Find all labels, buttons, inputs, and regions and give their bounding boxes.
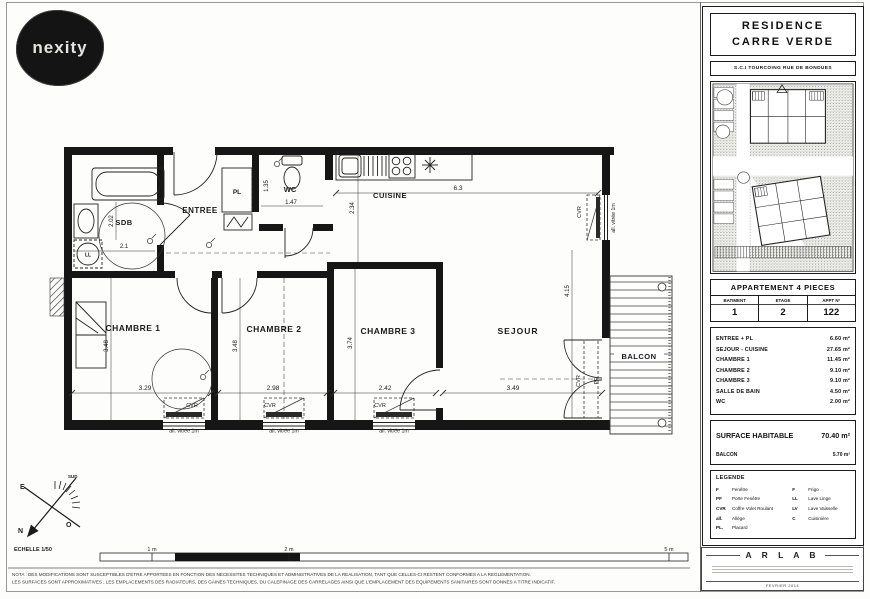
room-label-sdb: SDB bbox=[115, 218, 132, 227]
label-cvr-ch3: CVR bbox=[374, 403, 386, 409]
legend-item: all.Allège bbox=[716, 514, 788, 524]
scale-2m: 2 m bbox=[284, 547, 294, 553]
dim-ch2-w: 2.98 bbox=[267, 385, 280, 392]
area-label: CHAMBRE 3 bbox=[716, 376, 750, 387]
label-cvr-pf: CVR bbox=[576, 375, 582, 387]
scale-echelle: ECHELLE 1/50 bbox=[14, 547, 52, 553]
area-value: 6.60 m² bbox=[830, 334, 850, 345]
legend-abbr: LL bbox=[792, 494, 808, 504]
room-areas-box: ENTREE + PL6.60 m² SEJOUR - CUISINE27.65… bbox=[710, 327, 856, 415]
dim-sdb-h: 2.02 bbox=[109, 215, 115, 227]
room-label-pl: PL bbox=[233, 189, 241, 196]
site-plan-drawing bbox=[711, 82, 855, 273]
legend-abbr: CVR bbox=[716, 504, 732, 514]
architect-firm-name: A R L A B bbox=[706, 550, 859, 560]
batiment-value: 1 bbox=[711, 305, 758, 321]
area-row: CHAMBRE 29.10 m² bbox=[716, 366, 850, 377]
area-row: ENTREE + PL6.60 m² bbox=[716, 334, 850, 345]
dim-sejour-h: 4.15 bbox=[565, 285, 571, 297]
balcon-area-label: BALCON bbox=[716, 452, 737, 458]
residence-name-line2: CARRE VERDE bbox=[713, 35, 853, 51]
area-label: CHAMBRE 1 bbox=[716, 355, 750, 366]
label-lave-linge: LL bbox=[85, 253, 91, 259]
legend-abbr: PL. bbox=[716, 523, 732, 533]
compass-n: N bbox=[18, 528, 23, 535]
area-label: SEJOUR - CUISINE bbox=[716, 345, 768, 356]
dim-cuisine-h: 2.34 bbox=[350, 202, 356, 214]
surface-habitable-value: 70.40 m² bbox=[821, 431, 850, 440]
residence-title-box: RESIDENCE CARRE VERDE bbox=[710, 13, 856, 56]
room-label-cuisine: CUISINE bbox=[373, 191, 407, 200]
dim-ch3-w: 2.42 bbox=[379, 385, 392, 392]
legend-item: CVRCoffre Volet Roulant bbox=[716, 504, 788, 514]
label-allege-ch2: all. vitrée 1m bbox=[269, 429, 298, 435]
building-south bbox=[752, 176, 830, 245]
etage-cell: ETAGE 2 bbox=[759, 296, 807, 321]
dim-wc-w: 1.47 bbox=[285, 200, 297, 206]
compass-o: O bbox=[66, 522, 72, 529]
kitchen-fixtures bbox=[336, 152, 472, 180]
room-label-sejour: SEJOUR bbox=[498, 326, 539, 336]
legend-abbr: all. bbox=[716, 514, 732, 524]
dim-wc-h: 1.35 bbox=[264, 180, 270, 192]
area-value: 9.10 m² bbox=[830, 366, 850, 377]
architect-block: A R L A B FEVRIER 2014 bbox=[701, 547, 864, 591]
label-cvr-ch1: CVR bbox=[186, 403, 198, 409]
legend-item: LVLave Vaisselle bbox=[792, 504, 850, 514]
area-value: 2.00 m² bbox=[830, 397, 850, 408]
compass-sud: SUD bbox=[68, 474, 78, 479]
legend-item: PFPorte Fenêtre bbox=[716, 494, 788, 504]
legend-label: Frigo bbox=[808, 485, 818, 495]
batiment-cell: BATIMENT 1 bbox=[711, 296, 759, 321]
room-label-chambre3: CHAMBRE 3 bbox=[360, 326, 415, 336]
residence-name-line1: RESIDENCE bbox=[713, 19, 853, 35]
dim-sdb-w: 2.1 bbox=[120, 244, 129, 250]
room-label-chambre2: CHAMBRE 2 bbox=[246, 324, 301, 334]
nota-line-2: LES SURFACES SONT APPROXIMATIVES ; LES E… bbox=[12, 580, 555, 585]
label-allege-cuisine: all. vitrée 1m bbox=[611, 203, 617, 232]
legend-label: Placard bbox=[732, 523, 748, 533]
legend-label: Cuisinière bbox=[808, 514, 828, 524]
dim-ch2-h: 3.48 bbox=[233, 340, 239, 352]
legend-abbr: LV bbox=[792, 504, 808, 514]
dashed-axes bbox=[166, 253, 598, 420]
building-north bbox=[750, 90, 825, 144]
legend-box: LEGENDE FFenêtre PFPorte Fenêtre CVRCoff… bbox=[710, 470, 856, 539]
surface-habitable-label: SURFACE HABITABLE bbox=[716, 431, 793, 440]
area-value: 9.10 m² bbox=[830, 376, 850, 387]
area-label: SALLE DE BAIN bbox=[716, 387, 760, 398]
area-row: CHAMBRE 39.10 m² bbox=[716, 376, 850, 387]
area-value: 11.45 m² bbox=[827, 355, 850, 366]
room-label-entree: ENTREE bbox=[182, 206, 218, 215]
balcon-area-value: 5.70 m² bbox=[833, 452, 850, 458]
appt-number-cell: APPT N° 122 bbox=[808, 296, 855, 321]
area-label: WC bbox=[716, 397, 725, 408]
surface-box: SURFACE HABITABLE 70.40 m² BALCON 5.70 m… bbox=[710, 420, 856, 465]
legend-abbr: F bbox=[792, 485, 808, 495]
title-block: RESIDENCE CARRE VERDE S.C.I TOURCOING RU… bbox=[702, 6, 864, 546]
apartment-info-box: APPARTEMENT 4 PIECES BATIMENT 1 ETAGE 2 … bbox=[710, 279, 856, 322]
stair-hatch-block bbox=[50, 278, 64, 316]
nexity-logo-text: nexity bbox=[32, 38, 87, 58]
site-boundary-hatch bbox=[715, 246, 851, 257]
nota-line-1: NOTA : DES MODIFICATIONS SONT SUSCEPTIBL… bbox=[12, 572, 531, 577]
area-row: SEJOUR - CUISINE27.65 m² bbox=[716, 345, 850, 356]
dim-cuisine-w: 6.3 bbox=[453, 185, 462, 192]
panel-divider-line bbox=[700, 2, 701, 592]
dim-sejour-w: 3.49 bbox=[507, 385, 520, 392]
legend-abbr: F bbox=[716, 485, 732, 495]
etage-header: ETAGE bbox=[759, 296, 806, 305]
area-value: 27.65 m² bbox=[827, 345, 850, 356]
legend-abbr: PF bbox=[716, 494, 732, 504]
legend-column-left: FFenêtre PFPorte Fenêtre CVRCoffre Volet… bbox=[716, 485, 788, 533]
legend-label: Lave Linge bbox=[808, 494, 830, 504]
dimension-lines bbox=[69, 155, 605, 420]
etage-value: 2 bbox=[759, 305, 806, 321]
compass: E N O SUD bbox=[18, 474, 80, 536]
area-label: ENTREE + PL bbox=[716, 334, 753, 345]
scale-bar: ECHELLE 1/50 1 m 2 m 5 m bbox=[14, 547, 688, 561]
label-cvr-cuisine-window: CVR bbox=[577, 206, 583, 218]
legend-item: CCuisinière bbox=[792, 514, 850, 524]
label-allege-ch3: all. vitrée 1m bbox=[379, 429, 408, 435]
floor-plan-drawing: SDB ENTREE PL WC CUISINE CHAMBRE 1 CHAMB… bbox=[0, 0, 700, 599]
room-label-balcon: BALCON bbox=[621, 352, 656, 361]
appt-number-value: 122 bbox=[808, 305, 855, 321]
room-label-wc: WC bbox=[284, 185, 297, 194]
dim-ch1-w: 3.29 bbox=[139, 385, 152, 392]
room-label-chambre1: CHAMBRE 1 bbox=[105, 323, 160, 333]
legend-label: Coffre Volet Roulant bbox=[732, 504, 773, 514]
label-pf: PF bbox=[594, 377, 600, 385]
footer-notes: NOTA : DES MODIFICATIONS SONT SUSCEPTIBL… bbox=[8, 568, 690, 585]
plan-date: FEVRIER 2014 bbox=[706, 581, 859, 588]
area-row: WC2.00 m² bbox=[716, 397, 850, 408]
legend-label: Fenêtre bbox=[732, 485, 748, 495]
area-row: SALLE DE BAIN4.50 m² bbox=[716, 387, 850, 398]
dim-ch3-h: 3.74 bbox=[348, 337, 354, 349]
appt-number-header: APPT N° bbox=[808, 296, 855, 305]
apartment-title: APPARTEMENT 4 PIECES bbox=[711, 280, 855, 296]
area-label: CHAMBRE 2 bbox=[716, 366, 750, 377]
legend-label: Porte Fenêtre bbox=[732, 494, 760, 504]
sci-box: S.C.I TOURCOING RUE DE BONDUES bbox=[710, 61, 856, 76]
dim-ch1-h: 3.48 bbox=[104, 340, 110, 352]
legend-item: LLLave Linge bbox=[792, 494, 850, 504]
legend-item: FFrigo bbox=[792, 485, 850, 495]
area-row: CHAMBRE 111.45 m² bbox=[716, 355, 850, 366]
scale-5m: 5 m bbox=[664, 547, 674, 553]
architect-fineprint-lines bbox=[712, 566, 853, 575]
legend-abbr: C bbox=[792, 514, 808, 524]
legend-item: PL.Placard bbox=[716, 523, 788, 533]
label-cvr-ch2: CVR bbox=[264, 403, 276, 409]
batiment-header: BATIMENT bbox=[711, 296, 758, 305]
legend-column-right: FFrigo LLLave Linge LVLave Vaisselle CCu… bbox=[792, 485, 850, 533]
compass-e: E bbox=[20, 484, 25, 491]
scale-1m: 1 m bbox=[147, 547, 157, 553]
legend-label: Lave Vaisselle bbox=[808, 504, 837, 514]
legend-title: LEGENDE bbox=[716, 475, 850, 481]
area-value: 4.50 m² bbox=[830, 387, 850, 398]
legend-item: FFenêtre bbox=[716, 485, 788, 495]
legend-label: Allège bbox=[732, 514, 745, 524]
site-plan-thumbnail bbox=[710, 81, 856, 274]
label-allege-ch1: all. vitrée 1m bbox=[169, 429, 198, 435]
